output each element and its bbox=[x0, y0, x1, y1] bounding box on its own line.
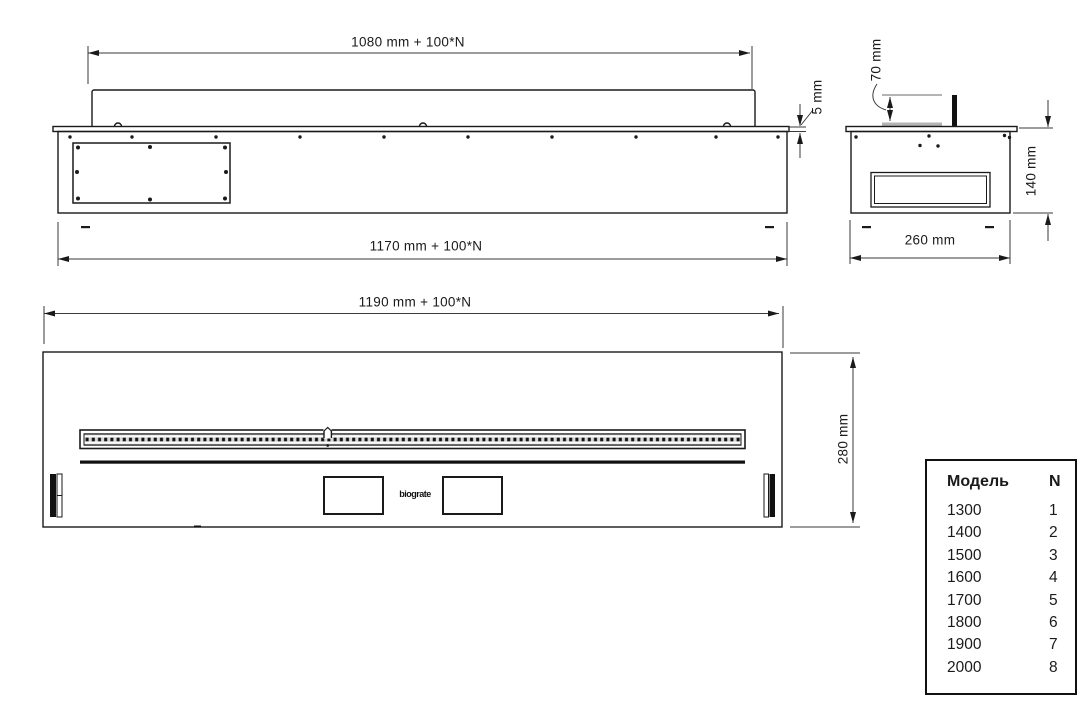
side-bottom-marks bbox=[862, 226, 994, 228]
n-cell: 1 bbox=[1049, 500, 1069, 522]
plan-slot-line bbox=[80, 461, 745, 464]
table-row: 1400 2 bbox=[947, 522, 1075, 544]
model-cell: 1600 bbox=[947, 567, 1049, 589]
front-burner-strip bbox=[92, 90, 755, 127]
model-cell: 1900 bbox=[947, 634, 1049, 656]
dim-label-plan-depth: 280 mm bbox=[836, 414, 851, 465]
n-cell: 6 bbox=[1049, 612, 1069, 634]
table-row: 1700 5 bbox=[947, 590, 1075, 612]
biograte-logo: biograte bbox=[399, 489, 431, 499]
technical-drawing-page: 1080 mm + 100*N 1170 mm + 100*N 5 mm 70 … bbox=[0, 0, 1089, 712]
access-panel bbox=[73, 143, 230, 203]
table-row: 2000 8 bbox=[947, 657, 1075, 679]
table-row: 1500 3 bbox=[947, 545, 1075, 567]
model-table-header-model: Модель bbox=[947, 473, 1049, 491]
model-table-header-n: N bbox=[1049, 473, 1069, 491]
dim-label-plate-thickness: 5 mm bbox=[810, 80, 825, 115]
plan-hatch-left bbox=[324, 477, 383, 514]
front-bottom-marks bbox=[81, 226, 774, 228]
front-screws bbox=[68, 135, 779, 138]
front-mounting-plate bbox=[53, 127, 789, 132]
side-mounting-plate bbox=[846, 127, 1017, 132]
plan-bottom-tick bbox=[194, 526, 201, 528]
n-cell: 4 bbox=[1049, 567, 1069, 589]
plan-dimensions bbox=[44, 306, 860, 527]
n-cell: 3 bbox=[1049, 545, 1069, 567]
side-opening-inner bbox=[875, 176, 987, 204]
model-cell: 1500 bbox=[947, 545, 1049, 567]
model-cell: 1800 bbox=[947, 612, 1049, 634]
front-view bbox=[53, 90, 789, 228]
dim-label-side-height: 140 mm bbox=[1024, 146, 1039, 197]
table-row: 1600 4 bbox=[947, 567, 1075, 589]
dim-label-plan-length: 1190 mm + 100*N bbox=[359, 295, 472, 310]
side-opening-outer bbox=[871, 173, 990, 208]
table-row: 1900 7 bbox=[947, 634, 1075, 656]
model-table-header: Модель N bbox=[947, 473, 1075, 491]
table-row: 1300 1 bbox=[947, 500, 1075, 522]
leader-70mm bbox=[873, 84, 886, 110]
n-cell: 8 bbox=[1049, 657, 1069, 679]
dim-label-burner-offset: 70 mm bbox=[869, 39, 884, 82]
n-cell: 7 bbox=[1049, 634, 1069, 656]
dim-label-front-top: 1080 mm + 100*N bbox=[351, 35, 465, 50]
dim-label-side-depth: 260 mm bbox=[905, 233, 956, 248]
model-cell: 1400 bbox=[947, 522, 1049, 544]
plan-grate-fill bbox=[84, 434, 741, 445]
plan-view bbox=[43, 352, 782, 528]
dim-label-front-bottom: 1170 mm + 100*N bbox=[370, 239, 483, 254]
plan-right-bars bbox=[764, 474, 775, 517]
side-screws bbox=[854, 134, 1011, 148]
control-knob bbox=[952, 95, 957, 127]
front-dimensions bbox=[58, 46, 813, 266]
model-cell: 1300 bbox=[947, 500, 1049, 522]
side-view bbox=[846, 95, 1017, 228]
model-cell: 2000 bbox=[947, 657, 1049, 679]
plan-left-bars bbox=[50, 474, 62, 517]
model-cell: 1700 bbox=[947, 590, 1049, 612]
plan-hatch-right bbox=[443, 477, 502, 514]
model-table: Модель N 1300 1 1400 2 1500 3 1600 4 170… bbox=[925, 459, 1077, 695]
table-row: 1800 6 bbox=[947, 612, 1075, 634]
n-cell: 5 bbox=[1049, 590, 1069, 612]
access-panel-screws bbox=[75, 145, 228, 202]
n-cell: 2 bbox=[1049, 522, 1069, 544]
